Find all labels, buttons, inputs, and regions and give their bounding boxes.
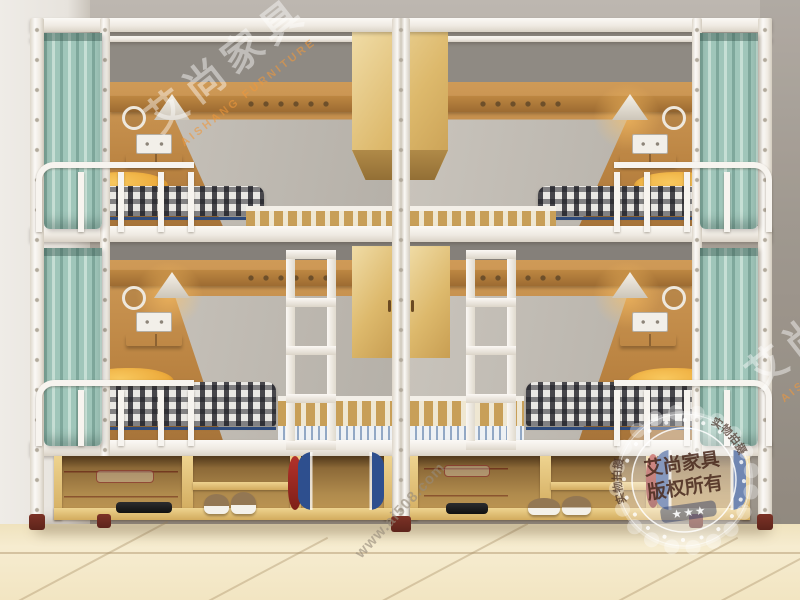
rail-baluster [188, 172, 194, 232]
guardrail-upper-left [36, 162, 194, 232]
bed-foot [97, 514, 111, 528]
wall-shade-lower-left [110, 242, 392, 260]
ladder-rung [286, 394, 336, 403]
ladder-rung [466, 346, 516, 355]
power-socket [136, 134, 172, 154]
ladder-left-unit [286, 250, 336, 450]
wall-shade-lower-right [410, 242, 692, 260]
rail-baluster [158, 390, 164, 446]
rail-baluster [684, 172, 690, 232]
cubby-shelf [193, 482, 290, 490]
hanging-cabinet-mid-right [408, 246, 450, 358]
ladder-rung [466, 250, 516, 259]
hanger-ring [662, 286, 686, 310]
bed-foot [29, 514, 45, 530]
suitcase-wheels [116, 502, 172, 513]
guardrail-lower-left [36, 380, 194, 446]
ladder-rung [286, 250, 336, 259]
small-shelf [620, 334, 676, 346]
small-shelf [126, 334, 182, 346]
dorm-bunk-bed-photo: 艾尚家具 AISHANG FURNITURE 艾尚家具 AISHANG FURN… [0, 0, 800, 600]
rail-baluster [78, 172, 84, 232]
shoe [562, 496, 591, 515]
ladder-rung [466, 298, 516, 307]
rail-baluster [118, 390, 124, 446]
hanger-ring [122, 106, 146, 130]
hanger-ring [122, 286, 146, 310]
rail-baluster [188, 390, 194, 446]
rail-baluster [614, 172, 620, 232]
rail-baluster [724, 172, 730, 232]
suitcase-handle-slot [96, 470, 154, 483]
cabinet-handle [411, 300, 414, 312]
cubby-divider [182, 456, 193, 512]
rail-baluster [118, 172, 124, 232]
hanger-ring [662, 106, 686, 130]
guardrail-upper-right [614, 162, 772, 232]
coat-hooks [244, 100, 336, 110]
hanging-cabinet-mid-left [352, 246, 394, 358]
power-socket [136, 312, 172, 332]
ladder-right-unit [466, 250, 516, 450]
copyright-stamp: 艾尚家具 版权所有 ★ ★ ★ 实物拍摄 实物拍摄 [596, 392, 772, 568]
ladder-rung [286, 346, 336, 355]
coat-hooks [476, 100, 568, 110]
ladder-rung [466, 394, 516, 403]
power-socket [632, 134, 668, 154]
rail-baluster [644, 172, 650, 232]
ladder-rung [286, 441, 336, 450]
ladder-rung [286, 298, 336, 307]
rail-baluster [158, 172, 164, 232]
shoe [231, 492, 256, 514]
rail-baluster [78, 390, 84, 446]
power-socket [632, 312, 668, 332]
shoe [204, 494, 229, 514]
shoe [528, 498, 560, 515]
cabinet-handle [388, 300, 391, 312]
